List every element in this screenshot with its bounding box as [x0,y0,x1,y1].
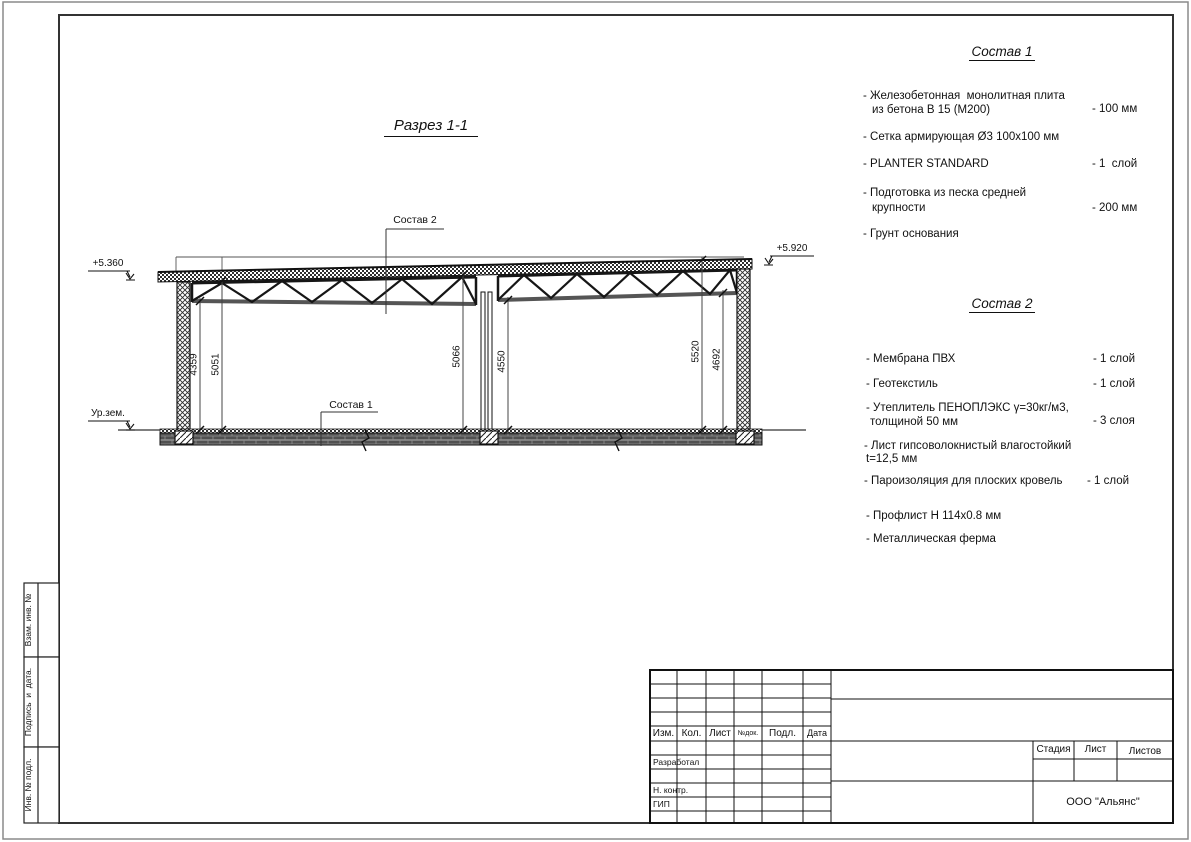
spec2-value: - 3 слоя [1093,415,1135,428]
tb-stage-list: Лист [1074,744,1117,755]
tb-role-nkontr: Н. контр. [653,786,688,795]
spec1-item: крупности [872,202,925,215]
callout-leaders [321,229,444,446]
truss-right-bay [498,270,737,301]
spec1-item: - Сетка армирующая Ø3 100х100 мм [863,131,1059,144]
tb-stage-stadia: Стадия [1033,744,1074,755]
side-label-vzam: Взам. инв. № [24,583,38,657]
tb-stage-listov: Листов [1117,746,1173,757]
spec2-item: t=12,5 мм [866,453,917,466]
spec-list-sostav1: Состав 1 - Железобетонная монолитная пли… [856,44,1148,254]
spec2-item: - Утеплитель ПЕНОПЛЭКС γ=30кг/м3, [866,402,1069,415]
section-title: Разрез 1-1 [384,117,478,137]
tb-header-podl: Подл. [762,728,803,739]
side-label-podpis: Подпись и дата. [24,657,38,747]
spec1-value: - 100 мм [1092,103,1137,116]
spec2-value: - 1 слой [1087,475,1129,488]
tb-role-gip: ГИП [653,800,670,809]
spec1-item: - Железобетонная монолитная плита [863,90,1065,103]
spec1-value: - 1 слой [1092,158,1137,171]
dim-label-right-outer: 5520 [691,322,702,382]
dim-label-left-outer: 5051 [211,335,222,395]
dim-label-mid-right: 4550 [497,332,508,392]
spec1-item: - Подготовка из песка средней [863,187,1026,200]
spec2-title: Состав 2 [856,296,1148,313]
dim-label-left-inner: 4359 [189,335,200,395]
side-label-inv: Инв. № подл. [24,747,38,823]
spec2-value: - 1 слой [1093,378,1135,391]
drawing-sheet: Разрез 1-1 +5.360 +5.920 Ур.зем. Состав … [0,0,1191,842]
tb-header-list: Лист [706,728,734,739]
spec2-item: - Пароизоляция для плоских кровель [864,475,1063,488]
floor-slab [118,429,806,451]
spec1-item: - Грунт основания [863,228,959,241]
spec-list-sostav2: Состав 2 - Мембрана ПВХ - 1 слой - Геоте… [856,296,1148,556]
middle-wall [481,292,492,430]
spec2-item: - Мембрана ПВХ [866,353,955,366]
tb-header-izm: Изм. [650,728,677,739]
spec1-item: - PLANTER STANDARD [863,158,989,171]
spec2-item: толщиной 50 мм [870,416,958,429]
tb-header-ndok: №док. [734,730,762,738]
spec2-item: - Геотекстиль [866,378,938,391]
spec1-title: Состав 1 [856,44,1148,61]
elevation-right-label: +5.920 [770,243,814,254]
tb-role-razrabotal: Разработал [653,758,699,767]
tb-company: ООО "Альянс" [1033,796,1173,808]
spec2-value: - 1 слой [1093,353,1135,366]
truss-left-bay [192,277,476,305]
elevation-left-label: +5.360 [86,258,130,269]
right-wall [737,269,750,430]
tb-header-kol: Кол. [677,728,706,739]
spec2-item: - Профлист Н 114х0.8 мм [866,510,1001,523]
dim-label-mid-left: 5066 [452,327,463,387]
ground-level-label: Ур.зем. [86,408,130,419]
dim-label-right-inner: 4692 [712,330,723,390]
tb-header-data: Дата [803,729,831,739]
spec1-item: из бетона В 15 (М200) [872,104,990,117]
callout-roof-label: Состав 2 [386,215,444,227]
callout-floor-label: Состав 1 [324,400,378,412]
spec2-item: - Лист гипсоволокнистый влагостойкий [864,440,1071,453]
spec1-value: - 200 мм [1092,202,1137,215]
spec2-item: - Металлическая ферма [866,533,996,546]
